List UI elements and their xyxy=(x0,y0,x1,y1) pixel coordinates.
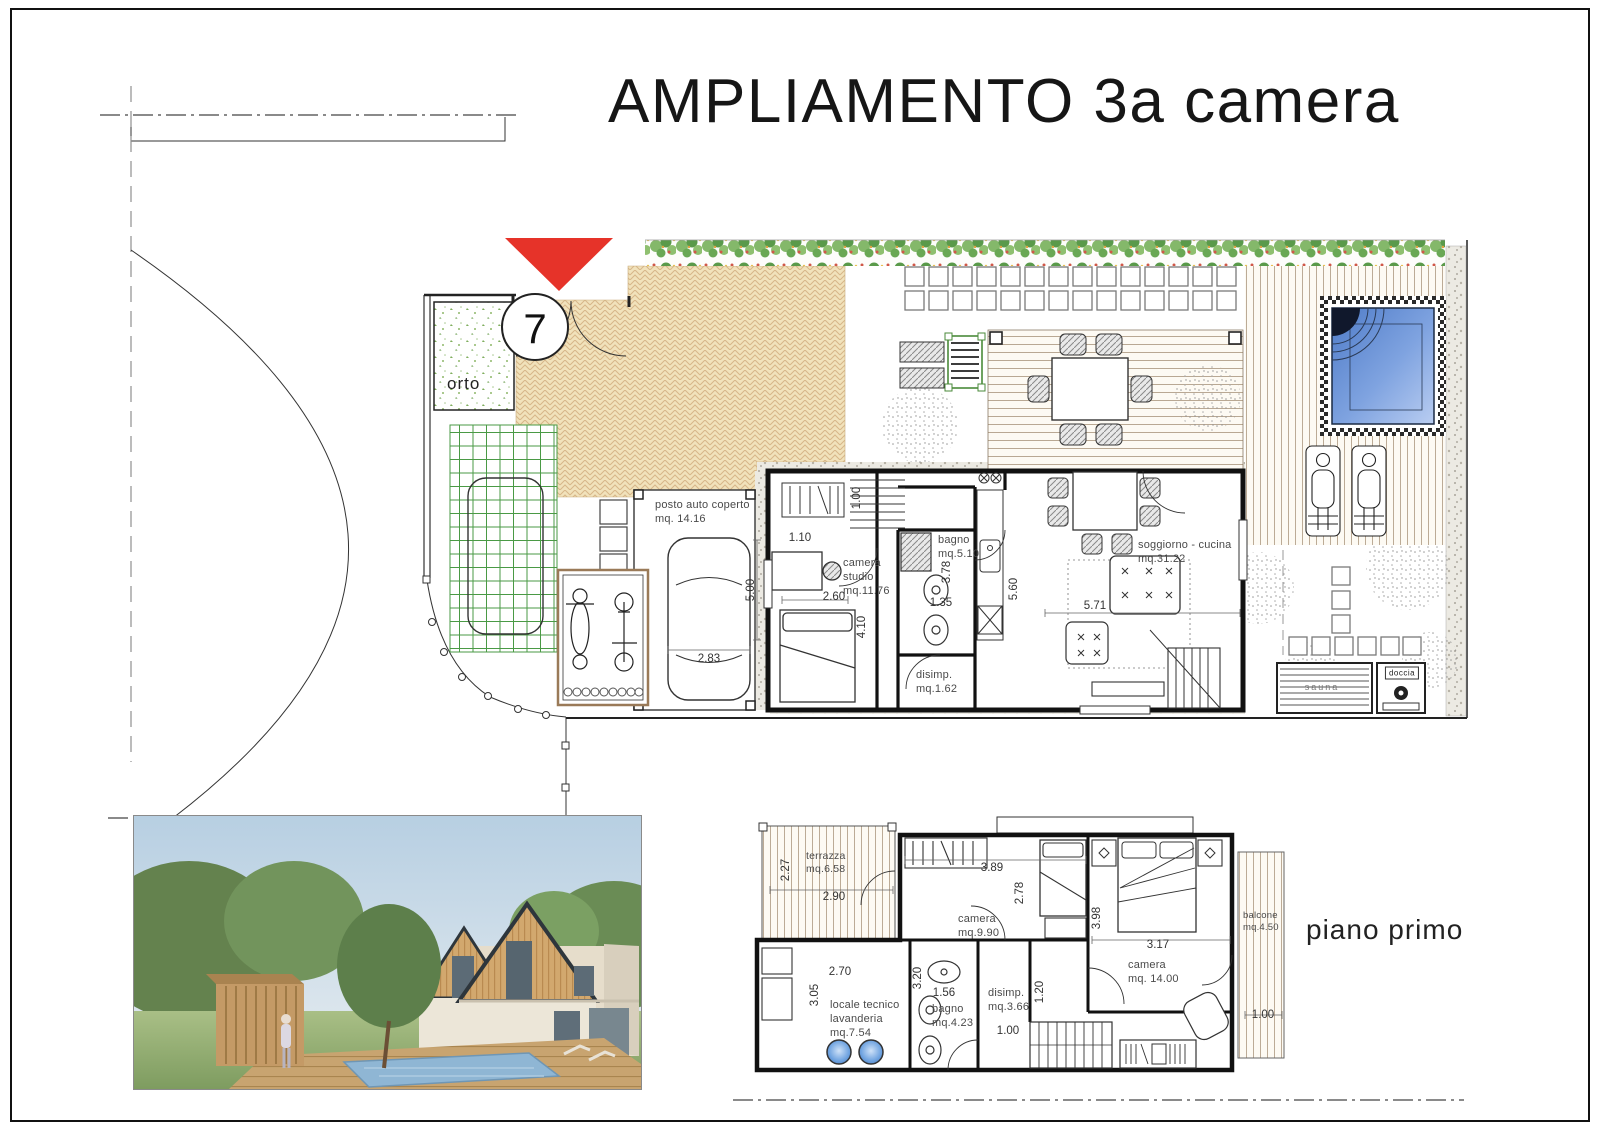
render-photo xyxy=(133,815,642,1090)
dim-bagno-depth-gf: 3.78 xyxy=(941,561,953,583)
label-camera-piccola: camera mq.9.90 xyxy=(958,912,999,940)
drawing-sheet: AMPLIAMENTO 3a camera 7 orto posto auto … xyxy=(0,0,1600,1131)
stone-row-2 xyxy=(905,291,1236,310)
lounger-1 xyxy=(1306,446,1340,536)
label-bagno-ff: bagno mq.4.23 xyxy=(932,1002,973,1030)
washing-machine xyxy=(827,1040,851,1064)
label-locale-tecnico: locale tecnico lavanderia mq.7.54 xyxy=(830,998,899,1040)
tree-front xyxy=(337,904,441,1028)
dim-studio-entry: 1.10 xyxy=(789,532,811,544)
label-sauna: sauna xyxy=(1305,682,1340,692)
dim-camera-piccola-width: 3.89 xyxy=(981,862,1003,874)
dim-garage-depth: 5.00 xyxy=(745,579,757,601)
lounger-2 xyxy=(1352,446,1386,536)
grass-paver-parking xyxy=(450,425,557,652)
flower-hedge xyxy=(645,240,1445,266)
outdoor-table xyxy=(1052,358,1128,420)
desk-ff xyxy=(1045,918,1086,938)
dim-bagno-depth-ff: 3.20 xyxy=(912,967,924,989)
desk-chair xyxy=(823,562,841,580)
shower xyxy=(901,533,931,571)
stepping-stones-top xyxy=(905,267,1236,310)
dim-terrazza-depth: 2.27 xyxy=(780,859,792,881)
label-camera-studio: camera studio mq.11.76 xyxy=(843,556,890,598)
dim-hall-depth: 1.00 xyxy=(851,487,863,509)
double-bed xyxy=(1118,838,1196,932)
label-camera-grande: camera mq. 14.00 xyxy=(1128,958,1179,986)
label-bagno-gf: bagno mq.5.10 xyxy=(938,533,979,561)
parapet xyxy=(997,817,1193,833)
pool-area xyxy=(1245,266,1446,545)
label-balcone: balcone mq.4.50 xyxy=(1243,910,1279,934)
unit-marker-arrow xyxy=(505,238,613,291)
dim-locale-depth: 3.05 xyxy=(809,984,821,1006)
label-terrazza: terrazza mq.6.58 xyxy=(806,850,846,877)
single-bed xyxy=(780,610,855,702)
dim-camera-piccola-depth: 2.78 xyxy=(1014,882,1026,904)
dim-hall-width-ff: 1.00 xyxy=(997,1025,1019,1037)
grill xyxy=(945,333,985,391)
desk xyxy=(772,552,822,590)
armchair xyxy=(1066,622,1108,664)
dim-balcone-width: 1.00 xyxy=(1252,1009,1274,1021)
label-disimpegno-gf: disimp. mq.1.62 xyxy=(916,668,957,696)
stone-row-1 xyxy=(905,267,1236,286)
dim-living-depth: 5.60 xyxy=(1008,578,1020,600)
ff-stairs xyxy=(1030,1022,1112,1068)
dim-studio-width: 2.60 xyxy=(823,591,845,603)
entry-closet xyxy=(782,483,844,517)
parked-car xyxy=(668,538,750,700)
tv-bench xyxy=(1092,682,1164,696)
wardrobe xyxy=(1120,1040,1196,1068)
label-posto-auto: posto auto coperto mq. 14.16 xyxy=(655,498,750,526)
dryer xyxy=(859,1040,883,1064)
dim-studio-depth: 4.10 xyxy=(856,616,868,638)
dim-camera-grande-depth: 3.98 xyxy=(1091,907,1103,929)
label-orto: orto xyxy=(447,374,480,394)
dim-disimpegno-width: 1.20 xyxy=(1034,981,1046,1003)
bbq-area xyxy=(900,333,985,391)
label-soggiorno: soggiorno - cucina mq.31.22 xyxy=(1138,538,1232,566)
balcony-deck xyxy=(1238,852,1284,1058)
page-title: AMPLIAMENTO 3a camera xyxy=(608,66,1400,137)
dim-camera-grande-width: 3.17 xyxy=(1147,939,1169,951)
pool xyxy=(1320,296,1446,436)
render-photo-art xyxy=(134,816,641,1089)
dim-living-width: 5.71 xyxy=(1084,600,1106,612)
label-doccia: doccia xyxy=(1385,667,1419,680)
unit-number: 7 xyxy=(523,305,546,353)
bike-storage xyxy=(558,570,648,705)
dim-garage-width: 2.83 xyxy=(698,653,720,665)
single-bed-ff xyxy=(1040,840,1086,916)
dining-table xyxy=(1073,472,1137,530)
dim-bagno-width-ff: 1.56 xyxy=(933,987,955,999)
dim-locale-width: 2.70 xyxy=(829,966,851,978)
terrace-deck xyxy=(759,823,896,952)
label-disimpegno-ff: disimp. mq.3.66 xyxy=(988,986,1029,1014)
floor-caption: piano primo xyxy=(1306,914,1463,946)
dim-terrazza-width: 2.90 xyxy=(823,891,845,903)
dim-bagno-width-gf: 1.35 xyxy=(930,597,952,609)
